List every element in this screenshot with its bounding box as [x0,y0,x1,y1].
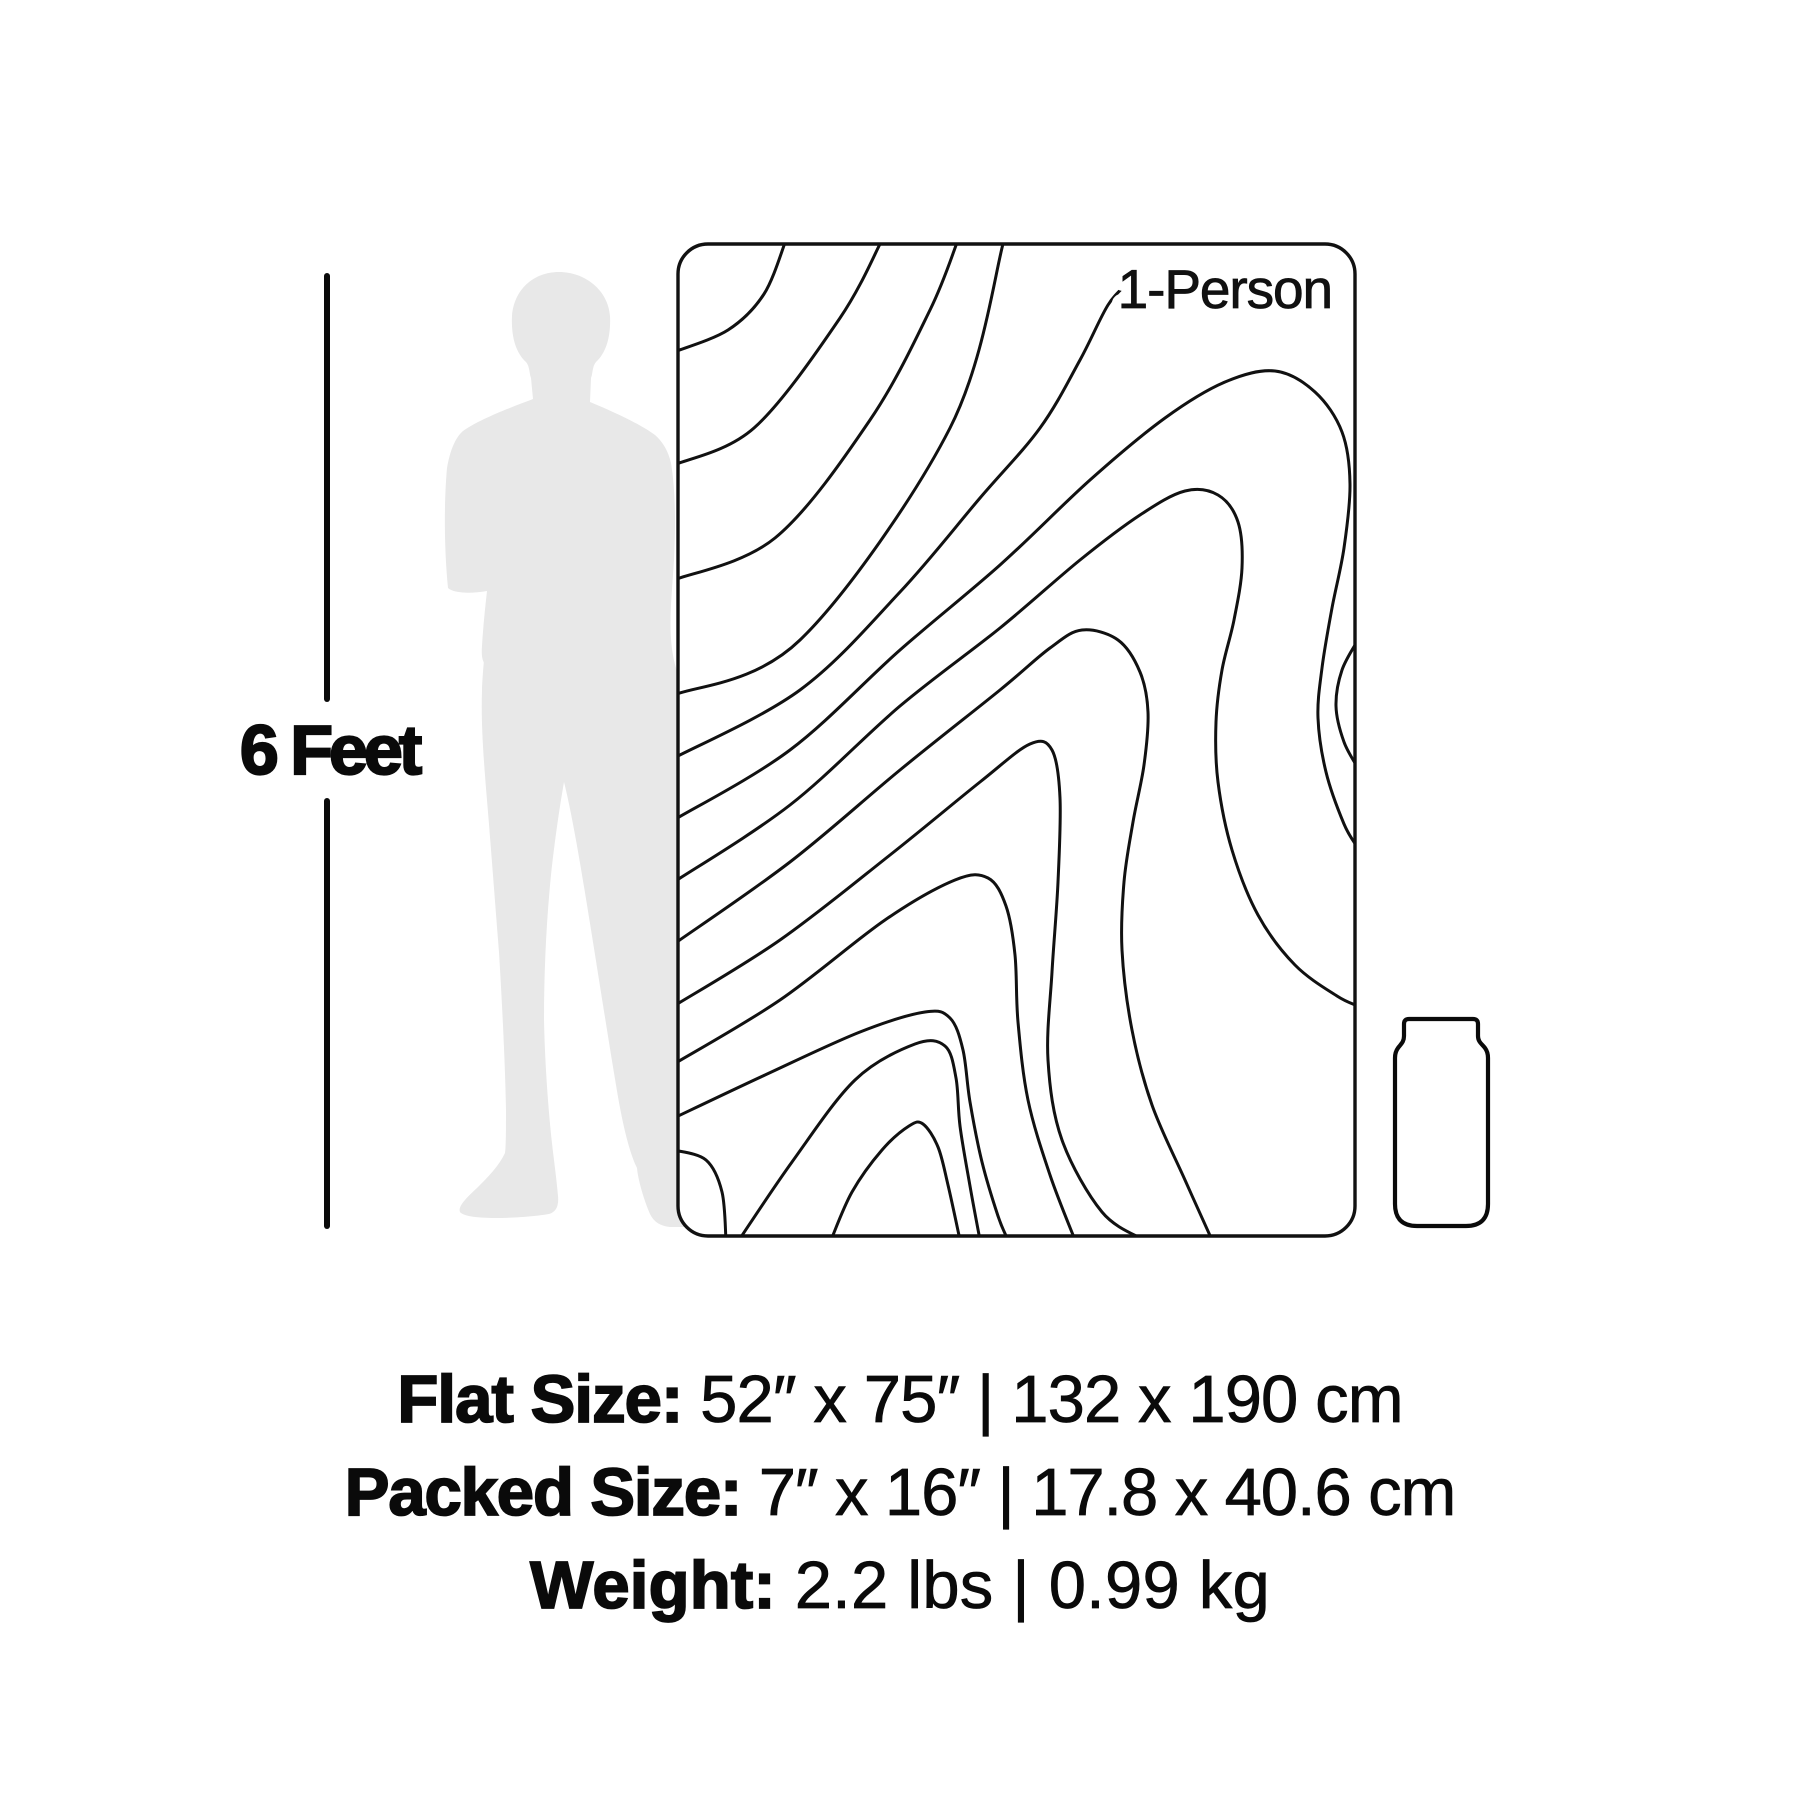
svg-text:Flat Size: 52″ x 75″ | 132 x 1: Flat Size: 52″ x 75″ | 132 x 190 cm [397,1362,1402,1437]
svg-text:Weight: 2.2 lbs | 0.99 kg: Weight: 2.2 lbs | 0.99 kg [530,1548,1270,1623]
svg-text:6 Feet: 6 Feet [240,711,422,789]
svg-text:1-Person: 1-Person [1118,258,1332,320]
svg-text:Packed Size: 7″ x 16″ | 17.8 x: Packed Size: 7″ x 16″ | 17.8 x 40.6 cm [345,1455,1456,1530]
